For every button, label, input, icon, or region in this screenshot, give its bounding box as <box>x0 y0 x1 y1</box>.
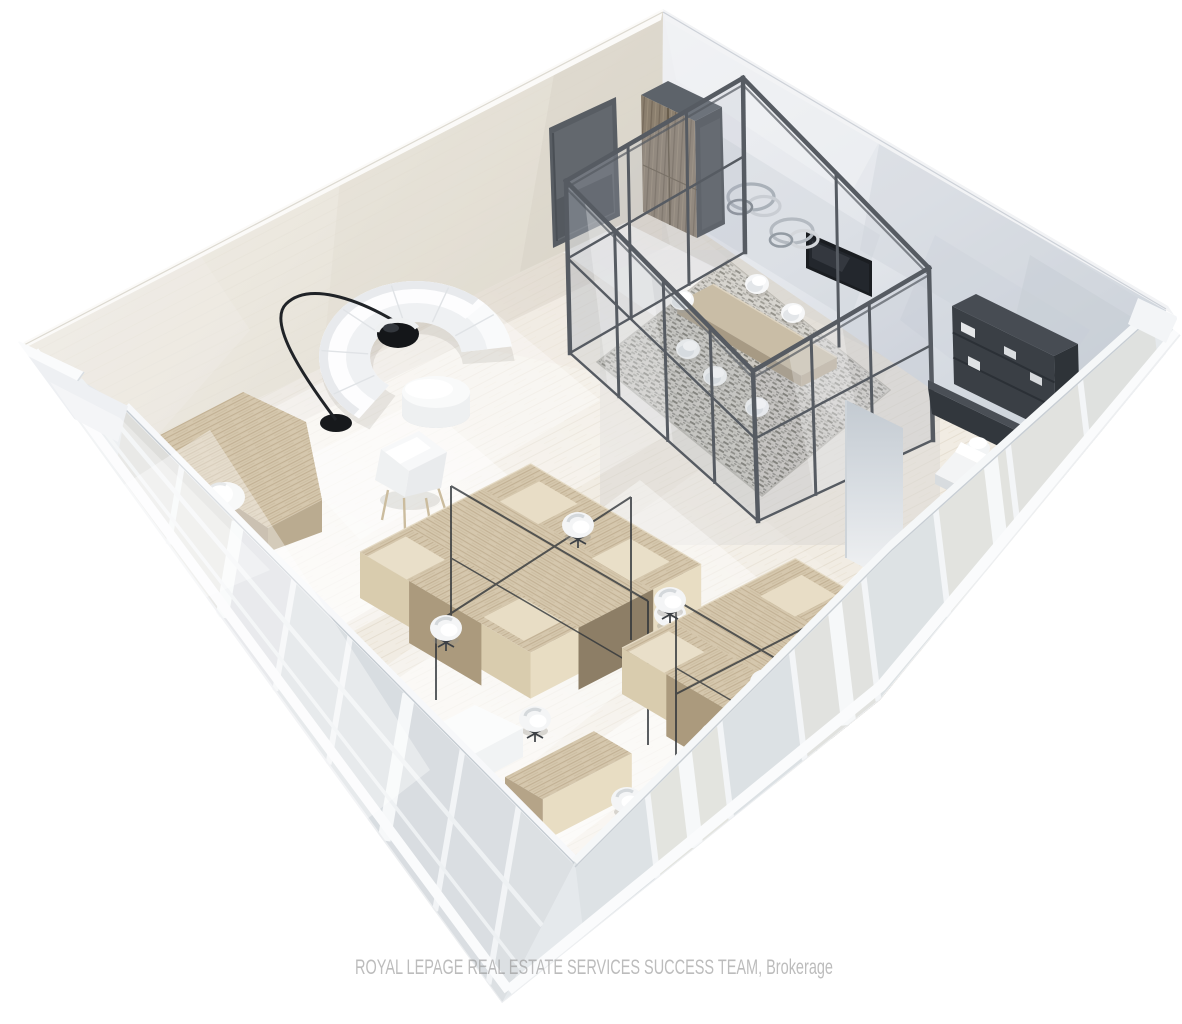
svg-text:ROYAL LEPAGE REAL ESTATE SERVI: ROYAL LEPAGE REAL ESTATE SERVICES SUCCES… <box>355 956 833 979</box>
